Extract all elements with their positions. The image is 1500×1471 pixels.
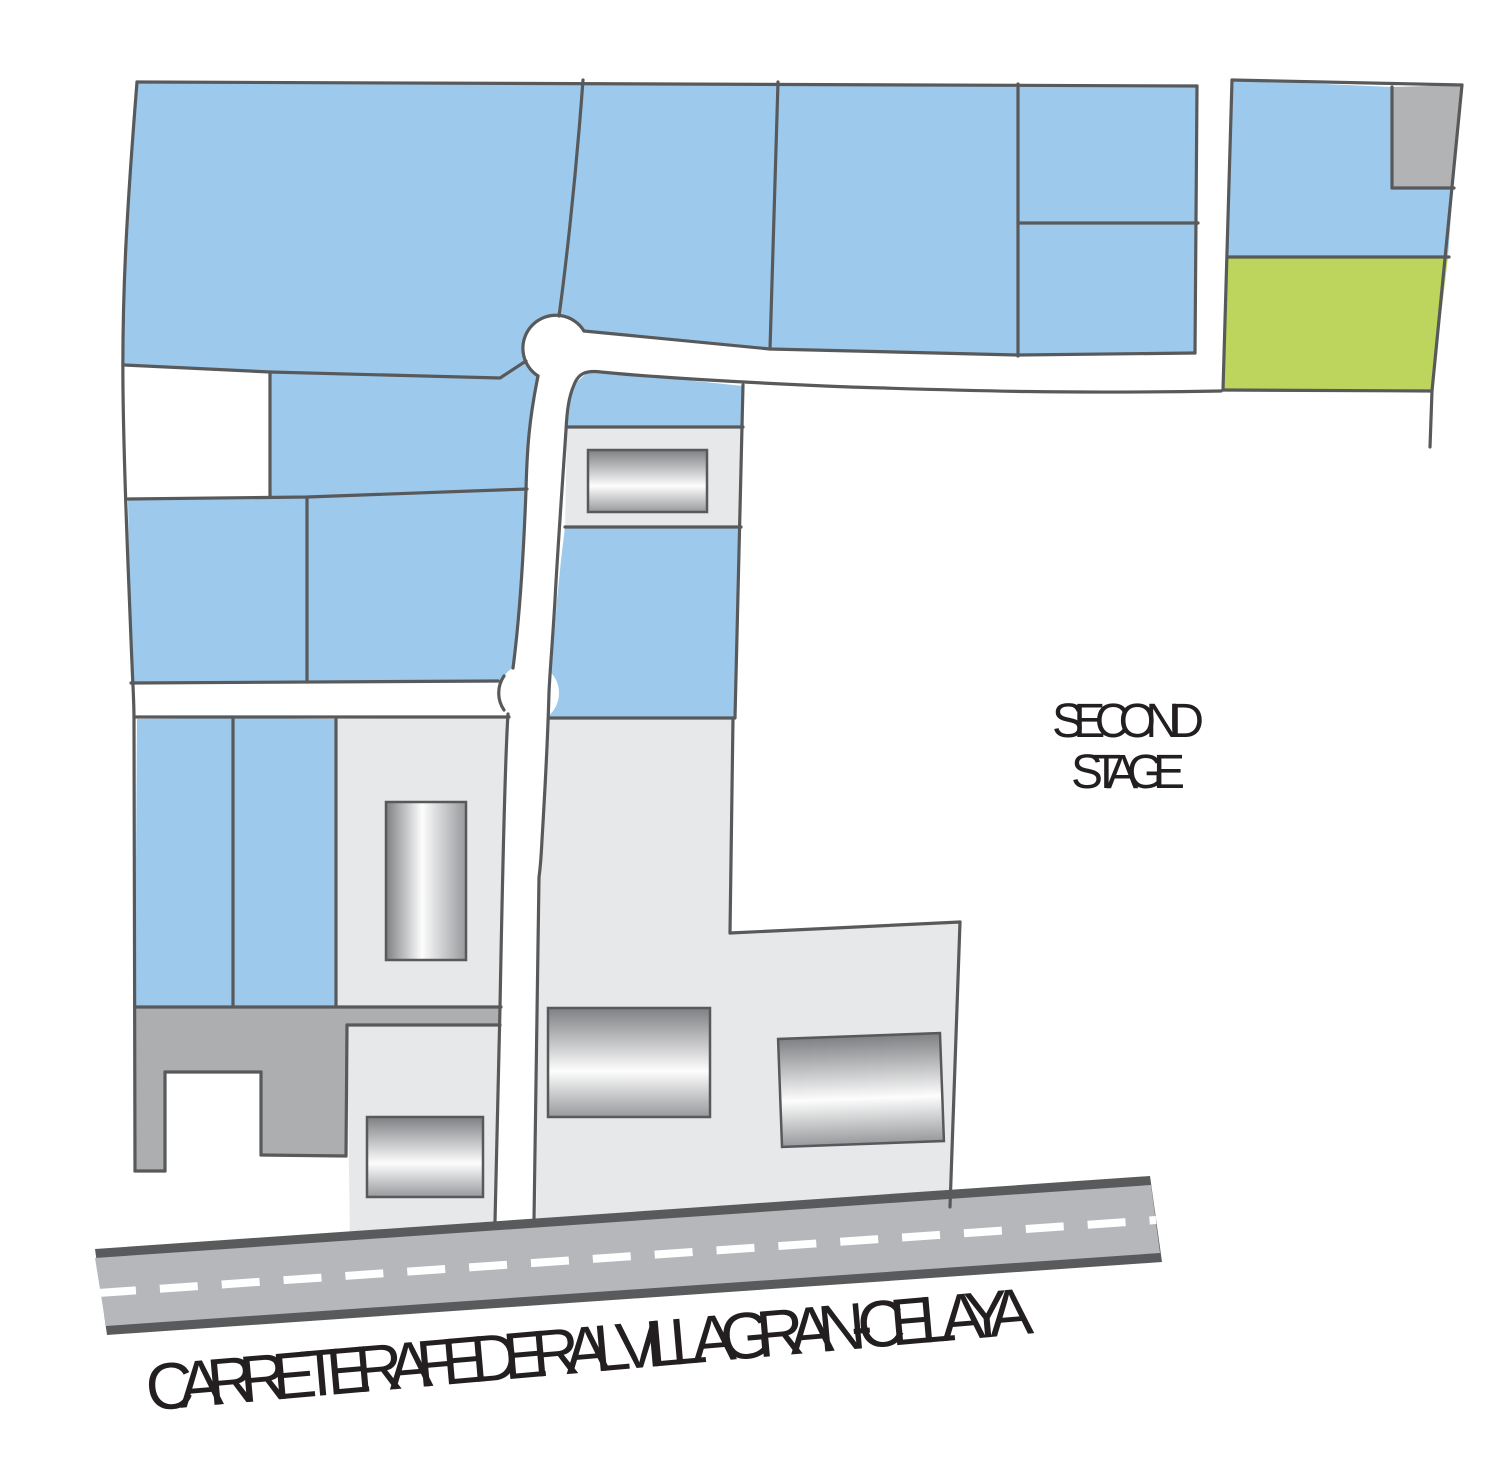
building-big-pad-west bbox=[548, 1008, 710, 1117]
lot-row4-left bbox=[135, 718, 233, 1007]
site-plan-map: SECOND STAGE CARRETERA FEDERAL VILLAGRAN… bbox=[0, 0, 1500, 1471]
block2-green-bottom bbox=[1223, 390, 1432, 391]
lot-secondstage-green bbox=[1223, 257, 1448, 391]
building-upper-east bbox=[588, 450, 707, 512]
second-stage-label-line2: STAGE bbox=[1071, 746, 1185, 799]
lot-row4-mid bbox=[233, 718, 336, 1007]
lot-east-lower bbox=[549, 527, 741, 718]
second-stage-label-line1: SECOND bbox=[1052, 695, 1204, 748]
lot-row1-strip bbox=[124, 82, 1197, 378]
pad-big-east bbox=[536, 718, 960, 1225]
lot-secondstage-gray bbox=[1392, 85, 1462, 188]
lot-row2-blue bbox=[270, 361, 538, 497]
block1-right-edge bbox=[1195, 86, 1197, 353]
pad-bottom-left-edge bbox=[346, 1025, 347, 1156]
lot-east-upper bbox=[567, 370, 743, 427]
lot-vacant-white bbox=[124, 365, 270, 499]
lot-row3-left bbox=[128, 497, 307, 683]
building-bottom-left bbox=[367, 1117, 483, 1197]
building-big-pad-east bbox=[778, 1033, 944, 1147]
street-horizontal-top bbox=[131, 681, 498, 683]
blue-lots bbox=[124, 80, 1453, 1007]
site-plan: SECOND STAGE CARRETERA FEDERAL VILLAGRAN… bbox=[0, 0, 1500, 1471]
building-vertical-mid bbox=[386, 802, 466, 960]
gray-stair-1 bbox=[261, 1155, 346, 1156]
lot-row3-right bbox=[307, 489, 527, 682]
